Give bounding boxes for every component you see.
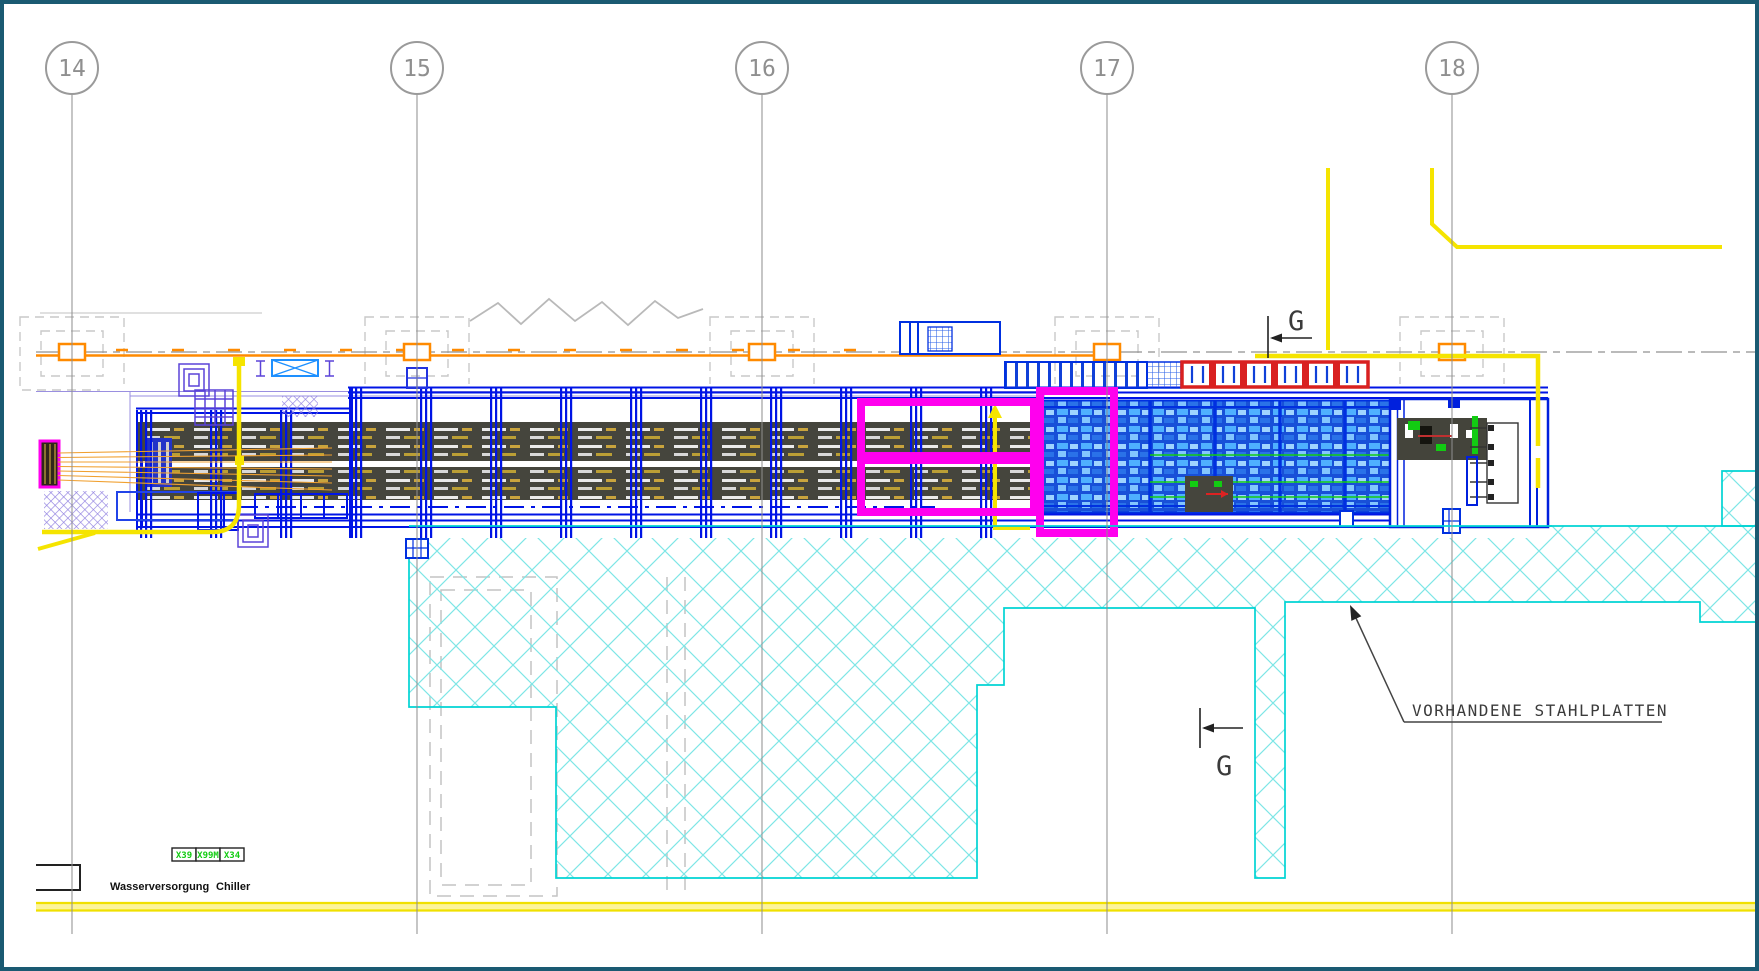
red-platform bbox=[1182, 362, 1368, 387]
section-label-g-top: G bbox=[1288, 306, 1304, 337]
connector-box-label: X39 bbox=[176, 851, 192, 861]
svg-text:15: 15 bbox=[403, 56, 431, 82]
grid-bubble-17: 17 bbox=[1081, 42, 1133, 94]
grid-bubbles: 14 15 16 17 18 bbox=[46, 42, 1478, 94]
lattice-patch bbox=[44, 491, 108, 529]
section-marker-bottom: G bbox=[1200, 708, 1243, 782]
steel-plate-text: VORHANDENE STAHLPLATTEN bbox=[1412, 701, 1668, 720]
section-label-g-bottom: G bbox=[1216, 751, 1232, 782]
svg-text:16: 16 bbox=[748, 56, 776, 82]
yellow-media-lines bbox=[1328, 168, 1722, 350]
break-line bbox=[470, 299, 703, 325]
grid-bubble-16: 16 bbox=[736, 42, 788, 94]
connector-boxes: X39 X99M X34 bbox=[172, 848, 244, 861]
grid-bubble-14: 14 bbox=[46, 42, 98, 94]
section-marker-top: G bbox=[1268, 306, 1312, 358]
chiller-label: Chiller bbox=[216, 881, 251, 893]
svg-text:17: 17 bbox=[1093, 56, 1121, 82]
door-symbol bbox=[36, 865, 80, 890]
grid-bubble-15: 15 bbox=[391, 42, 443, 94]
plan-canvas: X39 X99M X34 Wasserversorgung Chiller 14… bbox=[4, 4, 1755, 967]
feeder-box bbox=[40, 441, 59, 487]
right-end-cap bbox=[1390, 399, 1548, 527]
grid-bubble-18: 18 bbox=[1426, 42, 1478, 94]
svg-text:18: 18 bbox=[1438, 56, 1466, 82]
lattice-patch bbox=[282, 396, 318, 417]
steel-plate-annotation: VORHANDENE STAHLPLATTEN bbox=[1345, 603, 1668, 722]
svg-text:14: 14 bbox=[58, 56, 86, 82]
machine-line bbox=[36, 322, 1548, 558]
connector-box-label: X99M bbox=[197, 851, 219, 861]
connector-box-label: X34 bbox=[224, 851, 241, 861]
water-supply-label: Wasserversorgung bbox=[110, 881, 209, 893]
mid-dark-unit bbox=[1185, 476, 1233, 512]
x-brace-box bbox=[272, 360, 318, 376]
cad-drawing-sheet: X39 X99M X34 Wasserversorgung Chiller 14… bbox=[0, 0, 1759, 971]
